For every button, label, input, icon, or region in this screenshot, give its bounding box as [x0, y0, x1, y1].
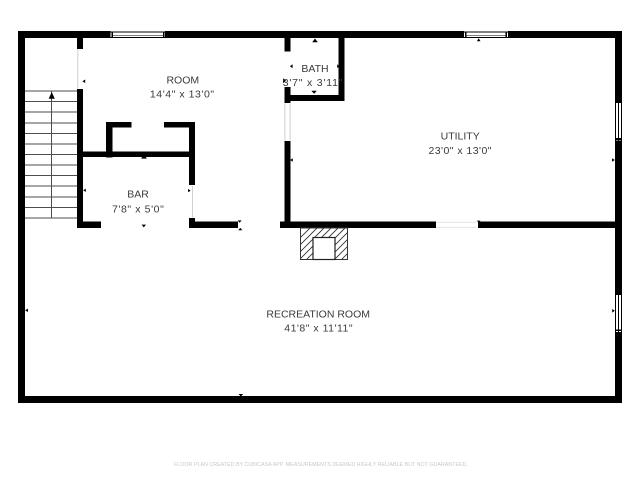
svg-text:7'8" x 5'0": 7'8" x 5'0": [112, 203, 165, 215]
svg-text:RECREATION ROOM: RECREATION ROOM: [266, 309, 370, 321]
svg-text:3'7" x 3'11": 3'7" x 3'11": [283, 77, 344, 89]
svg-text:14'4" x 13'0": 14'4" x 13'0": [150, 88, 215, 100]
svg-text:BATH: BATH: [301, 63, 328, 75]
svg-text:ROOM: ROOM: [166, 75, 199, 87]
svg-text:41'8" x 11'11": 41'8" x 11'11": [284, 322, 353, 334]
svg-text:FLOOR PLAN CREATED BY CUBICASA: FLOOR PLAN CREATED BY CUBICASA APP. MEAS…: [174, 462, 468, 468]
svg-text:BAR: BAR: [127, 188, 149, 200]
svg-text:UTILITY: UTILITY: [441, 131, 480, 143]
svg-text:23'0" x 13'0": 23'0" x 13'0": [428, 145, 491, 157]
